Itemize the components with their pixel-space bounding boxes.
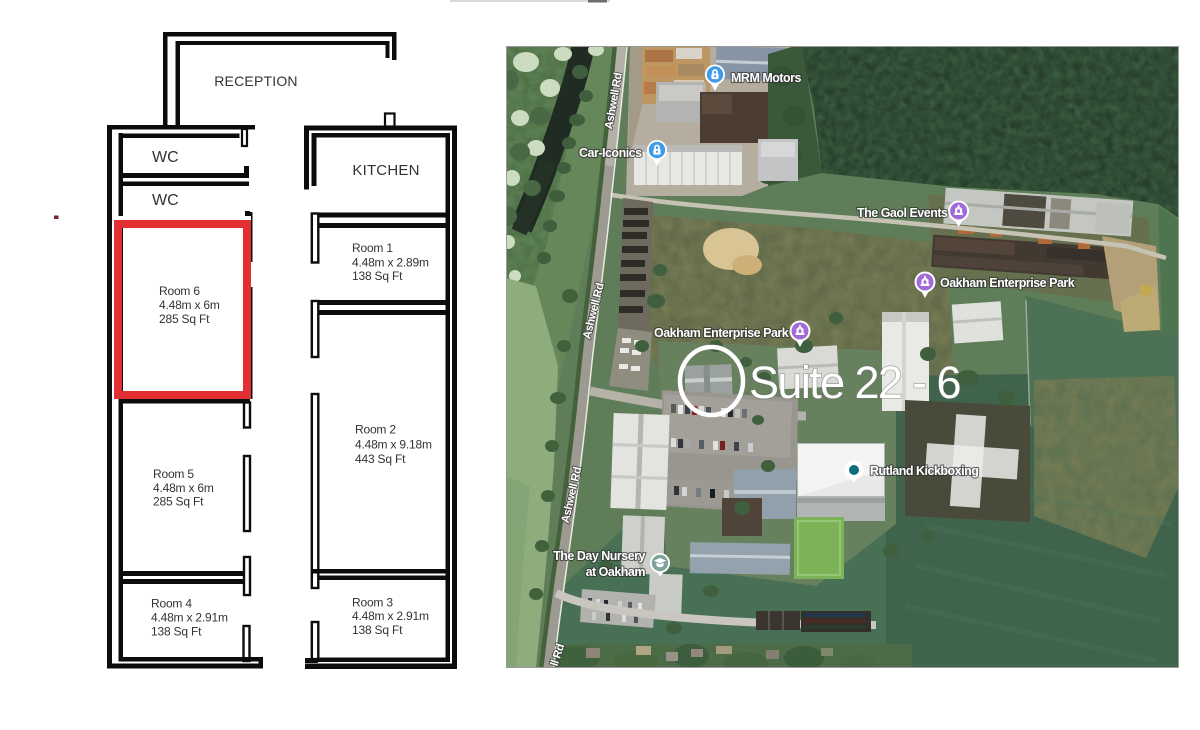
svg-text:4.48m x 9.18m: 4.48m x 9.18m bbox=[355, 438, 432, 452]
svg-text:4.48m x 2.89m: 4.48m x 2.89m bbox=[352, 256, 429, 270]
svg-text:Oakham Enterprise Park: Oakham Enterprise Park bbox=[654, 326, 789, 340]
svg-text:Car-Iconics: Car-Iconics bbox=[579, 146, 642, 160]
svg-text:285 Sq Ft: 285 Sq Ft bbox=[153, 495, 204, 509]
svg-text:Room 5: Room 5 bbox=[153, 467, 194, 481]
svg-text:WC: WC bbox=[152, 149, 179, 166]
svg-text:The Gaol Events: The Gaol Events bbox=[857, 206, 948, 220]
svg-text:RECEPTION: RECEPTION bbox=[214, 73, 297, 89]
svg-text:4.48m x 6m: 4.48m x 6m bbox=[159, 298, 220, 312]
svg-text:MRM Motors: MRM Motors bbox=[731, 71, 802, 85]
svg-text:Room 2: Room 2 bbox=[355, 423, 396, 437]
svg-text:4.48m x 6m: 4.48m x 6m bbox=[153, 481, 214, 495]
svg-text:138 Sq Ft: 138 Sq Ft bbox=[151, 625, 202, 639]
svg-text:at Oakham: at Oakham bbox=[586, 565, 646, 579]
svg-text:Room 1: Room 1 bbox=[352, 241, 393, 255]
svg-text:285 Sq Ft: 285 Sq Ft bbox=[159, 312, 210, 326]
svg-text:The Day Nursery: The Day Nursery bbox=[553, 549, 645, 563]
svg-text:4.48m x 2.91m: 4.48m x 2.91m bbox=[151, 611, 228, 625]
svg-text:Rutland Kickboxing: Rutland Kickboxing bbox=[870, 464, 978, 478]
svg-text:WC: WC bbox=[152, 192, 179, 209]
svg-text:Oakham Enterprise Park: Oakham Enterprise Park bbox=[940, 276, 1075, 290]
svg-text:Room 4: Room 4 bbox=[151, 597, 192, 611]
svg-text:Room 3: Room 3 bbox=[352, 596, 393, 610]
svg-text:Suite 22 - 6: Suite 22 - 6 bbox=[749, 357, 961, 408]
svg-text:443 Sq Ft: 443 Sq Ft bbox=[355, 452, 406, 466]
svg-text:Room 6: Room 6 bbox=[159, 284, 200, 298]
svg-text:4.48m x 2.91m: 4.48m x 2.91m bbox=[352, 609, 429, 623]
svg-text:KITCHEN: KITCHEN bbox=[352, 162, 419, 179]
svg-text:138 Sq Ft: 138 Sq Ft bbox=[352, 623, 403, 637]
svg-text:138 Sq Ft: 138 Sq Ft bbox=[352, 269, 403, 283]
